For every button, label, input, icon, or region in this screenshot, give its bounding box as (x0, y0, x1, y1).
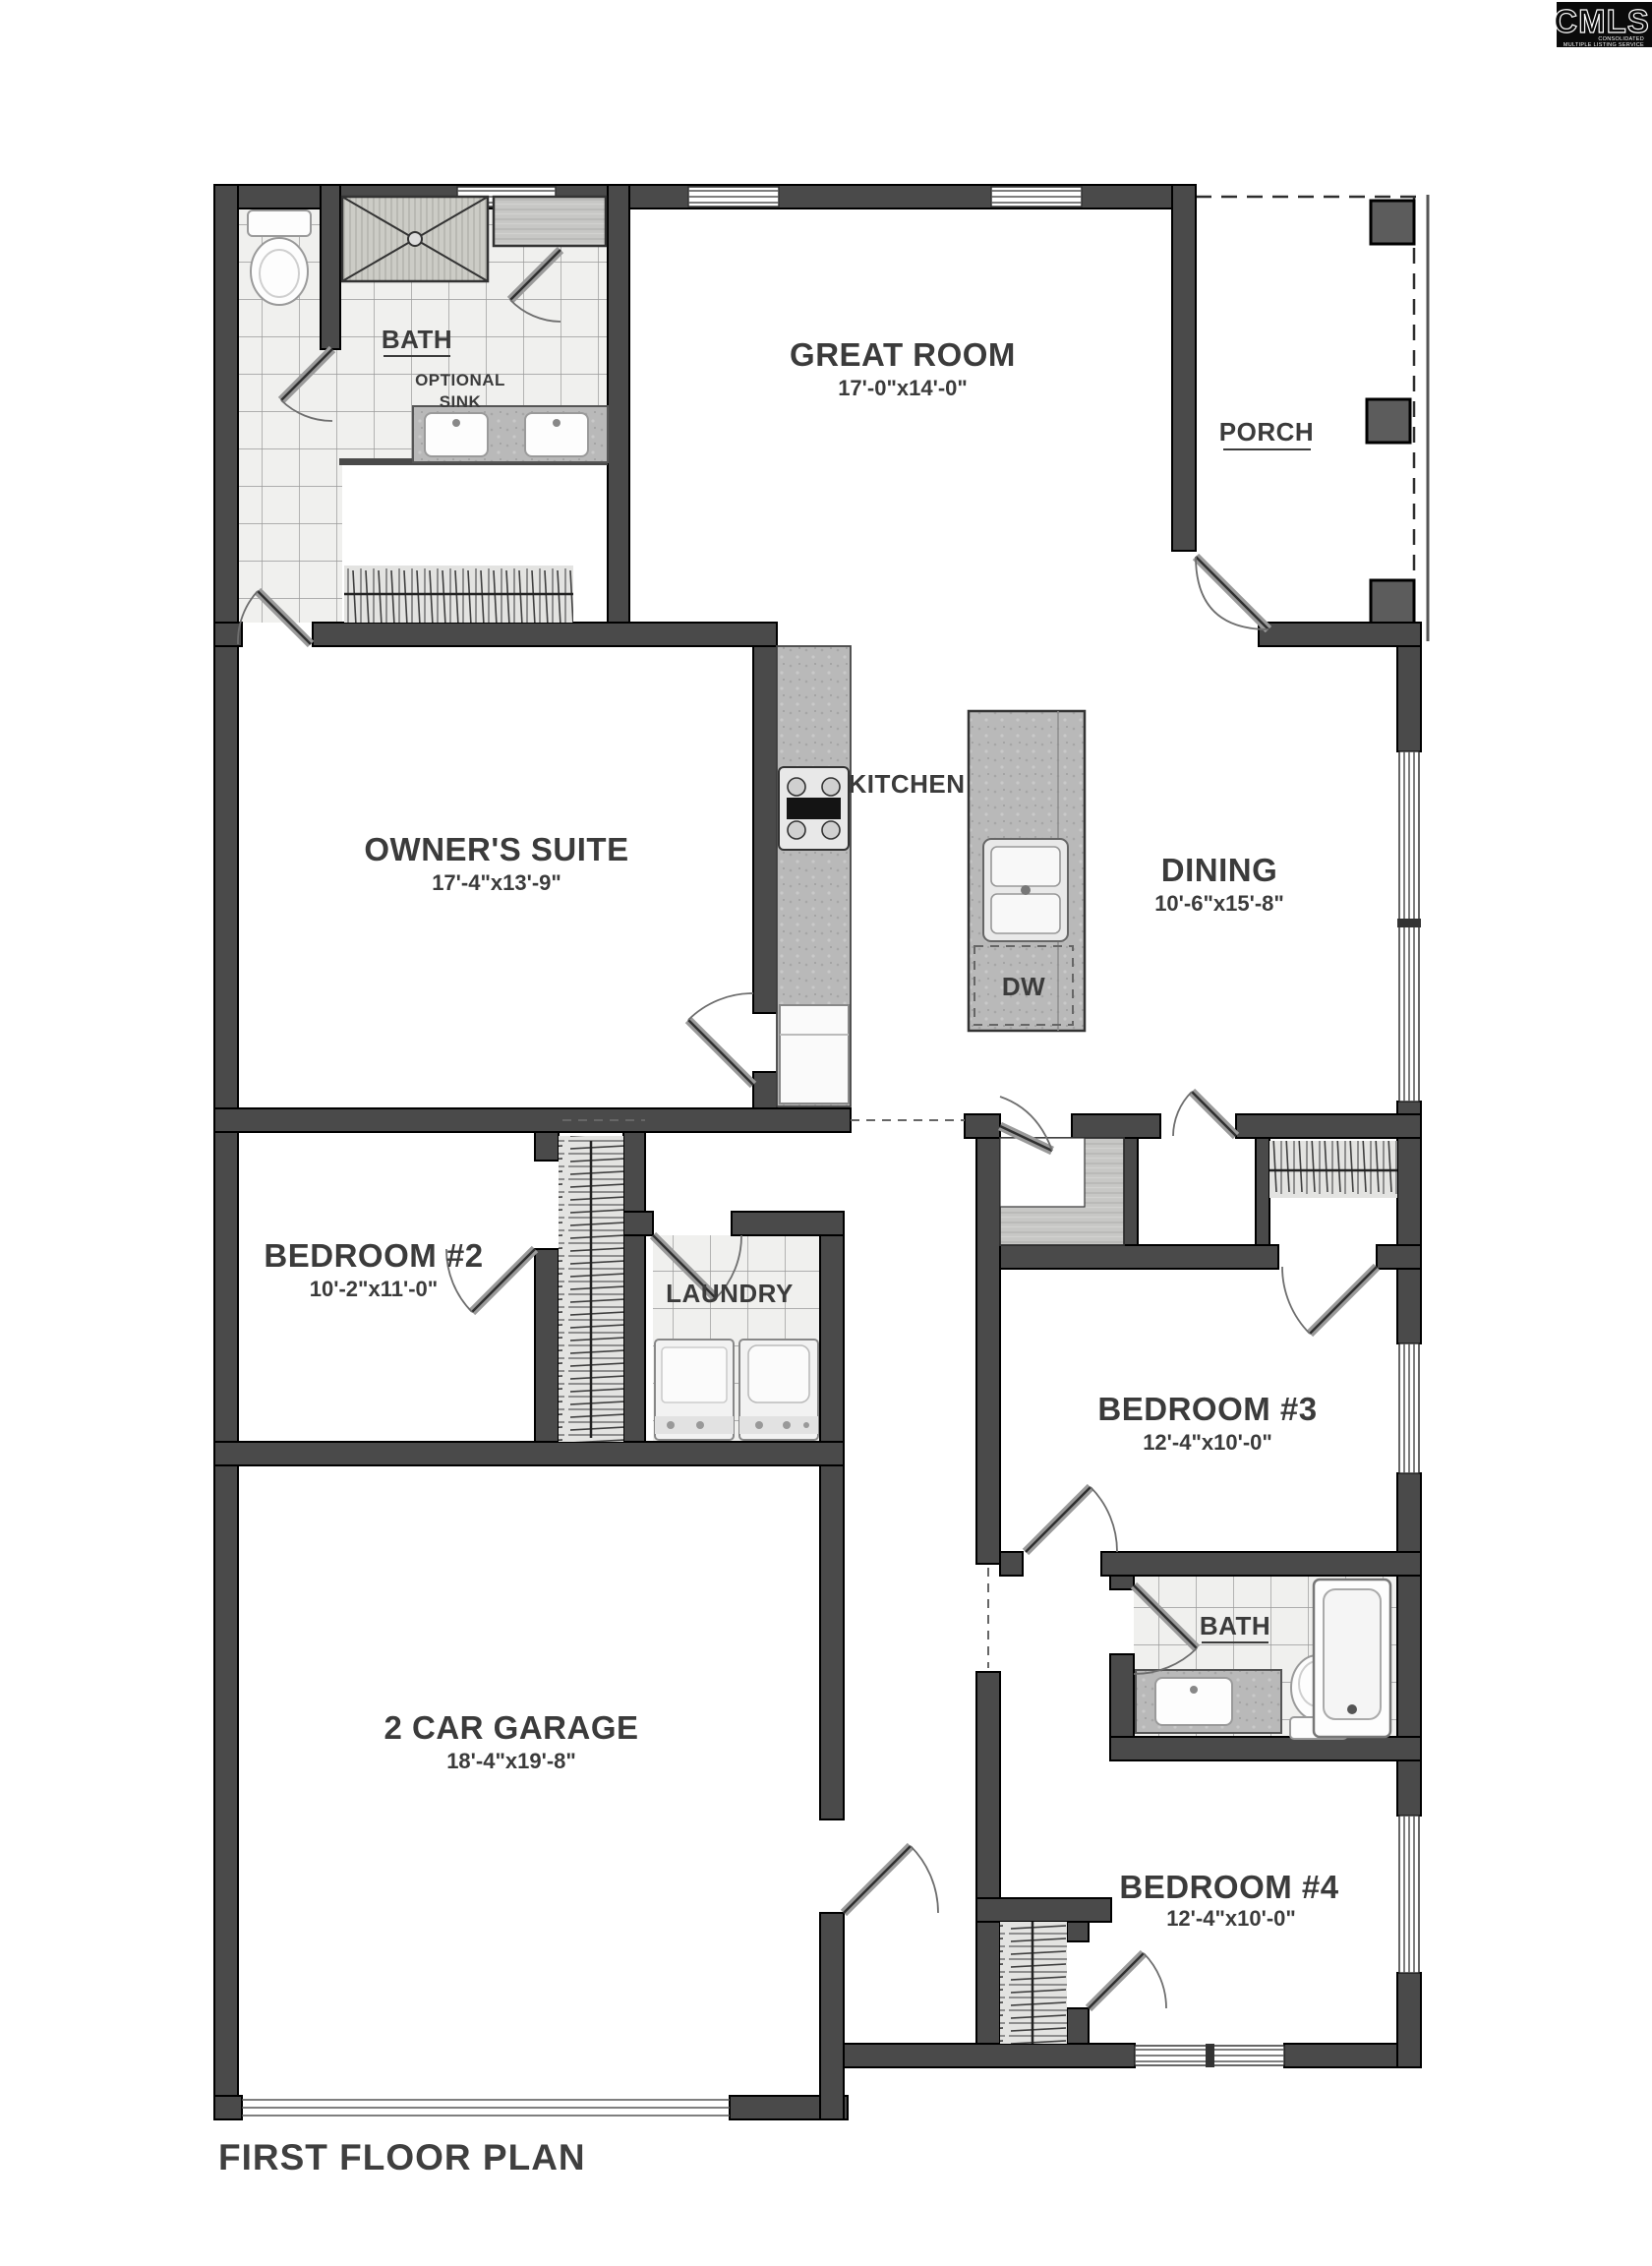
toilet-fixture (248, 210, 311, 305)
window (1399, 1343, 1419, 1473)
door-swing (1173, 1092, 1236, 1136)
window (1397, 751, 1421, 1102)
bedroom4-dims: 12'-4"x10'-0" (1166, 1906, 1296, 1931)
porch-label: PORCH (1219, 417, 1314, 447)
double-sink-vanity (413, 406, 608, 462)
owners-closet-rod-hatch (344, 566, 573, 623)
porch-column (1367, 399, 1410, 443)
bathtub (1314, 1580, 1390, 1737)
bed2-closet-rod-hatch (559, 1136, 623, 1442)
owners-suite-dims: 17'-4"x13'-9" (432, 870, 561, 895)
bath1-note1: OPTIONAL (415, 371, 505, 389)
door-swing (688, 993, 753, 1085)
bedroom2-label: BEDROOM #2 (264, 1237, 483, 1274)
kitchen-fixtures (777, 646, 1085, 1106)
garage-dims: 18'-4"x19'-8" (446, 1749, 576, 1773)
bedroom2-dims: 10'-2"x11'-0" (310, 1277, 438, 1301)
kitchen-label: KITCHEN (848, 769, 965, 799)
window (991, 187, 1082, 207)
garage-label: 2 CAR GARAGE (383, 1709, 638, 1746)
cmls-logo-text: CMLS (1554, 3, 1650, 39)
page-title: FIRST FLOOR PLAN (218, 2137, 586, 2177)
range-stove (779, 767, 849, 850)
laundry-label: LAUNDRY (666, 1279, 794, 1308)
cmls-logo: CMLS CONSOLIDATED MULTIPLE LISTING SERVI… (1554, 2, 1652, 48)
washer (655, 1340, 734, 1440)
door-swing (844, 1846, 938, 1913)
dining-label: DINING (1161, 852, 1278, 888)
window (688, 187, 779, 207)
floor-plan-page: BATH OPTIONAL SINK GREAT ROOM 17'-0"x14'… (0, 0, 1652, 2266)
window (1399, 1816, 1419, 1973)
owners-suite-label: OWNER'S SUITE (364, 831, 628, 867)
vanity-sink (1136, 1670, 1281, 1733)
porch-column (1371, 201, 1414, 244)
front-entry-door (1196, 557, 1268, 629)
bath1-label: BATH (382, 325, 452, 354)
bath1-note2: SINK (440, 392, 482, 411)
door-swing (1089, 1953, 1166, 2008)
great-room-dims: 17'-0"x14'-0" (838, 376, 968, 400)
window (1135, 2044, 1284, 2067)
bed4-closet-rod-hatch (1000, 1922, 1067, 2044)
linen-closet (494, 197, 606, 246)
door-swing (1282, 1267, 1377, 1334)
dishwasher-label: DW (1002, 972, 1045, 1001)
bath2-label: BATH (1200, 1611, 1270, 1640)
porch-column (1371, 580, 1414, 624)
dryer (739, 1340, 818, 1440)
island-sink (983, 839, 1068, 941)
bed3-closet-rod-hatch (1269, 1141, 1397, 1198)
refrigerator (780, 1005, 849, 1103)
door-swing (1026, 1487, 1117, 1552)
floor-plan-drawing: BATH OPTIONAL SINK GREAT ROOM 17'-0"x14'… (0, 0, 1652, 2266)
shower-fixture (342, 197, 488, 281)
bedroom3-dims: 12'-4"x10'-0" (1143, 1430, 1272, 1455)
great-room-label: GREAT ROOM (790, 336, 1016, 373)
bedroom3-label: BEDROOM #3 (1097, 1391, 1317, 1427)
bedroom4-label: BEDROOM #4 (1119, 1869, 1338, 1905)
cmls-logo-tagline-2: MULTIPLE LISTING SERVICE (1563, 42, 1644, 48)
pantry-closet (1000, 1138, 1124, 1245)
garage-door-opening (242, 2100, 730, 2116)
dining-dims: 10'-6"x15'-8" (1154, 891, 1284, 916)
